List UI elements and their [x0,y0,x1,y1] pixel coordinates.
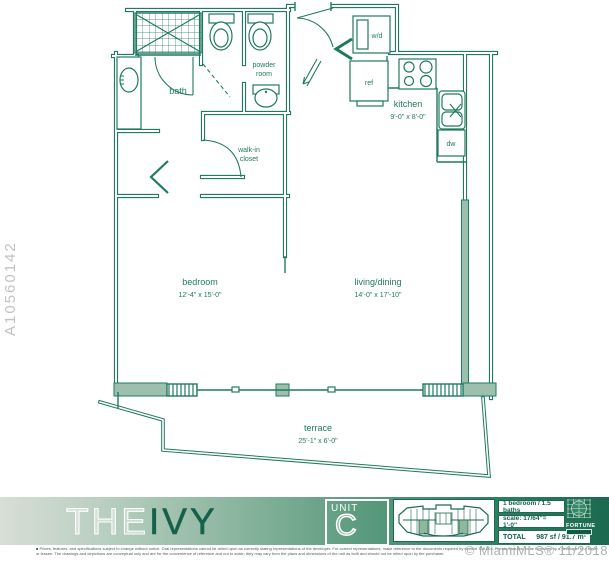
scale-text: scale: 17/64''= 1'-0'' [503,515,560,529]
kitchen-dims: 9'-0" x 8'-0" [390,114,426,121]
living-dims: 14'-0" x 17'-10" [355,292,402,299]
floor-plan-drawing: bath powder room walk-in closet kitchen … [0,0,609,497]
bedroom-closet-door [151,161,168,193]
beds-baths-box: 1 bedroom / 1.5 baths [498,500,565,513]
floorplan-page: bath powder room walk-in closet kitchen … [0,0,609,563]
bath-label: bath [169,86,187,96]
toilet-bath [209,14,234,50]
building-keyplan [393,499,495,542]
powder-label-1: powder [253,62,277,69]
south-glazing [167,384,463,396]
beds-baths-text: 1 bedroom / 1.5 baths [503,500,560,514]
fortune-logo: FORTUNE [566,499,591,529]
highlighted-unit-left [419,520,428,534]
brand-the: THE [66,502,149,542]
powder-sink [253,85,279,107]
entry-angled-wall [336,39,352,59]
unit-letter: C [335,509,357,543]
bedroom-label: bedroom [182,277,218,287]
powder-label-2: room [256,71,272,78]
unit-badge: UNIT C [325,499,389,546]
listing-id-watermark: A10560142 [2,196,22,336]
south-wall-right [463,383,496,396]
terrace-dims: 25'-1" x 6'-0" [298,438,338,445]
ref-label: ref [365,80,373,87]
slider-door-right [423,384,463,396]
entry-arrow [303,59,321,86]
fortune-tagline-bar [566,529,592,535]
stove [399,59,436,89]
wd-label: w/d [371,33,383,40]
closet-label-2: closet [240,156,258,163]
slider-door-left [167,384,197,396]
brand-logo: THEIVY [66,500,218,544]
terrace-outline [100,392,489,476]
globe-icon [567,499,591,518]
terrace-label: terrace [304,423,332,433]
living-label: living/dining [354,277,401,287]
total-label: TOTAL [503,534,526,541]
closet-label-1: walk-in [237,147,260,154]
brand-ivy: IVY [149,502,218,542]
scale-box: scale: 17/64''= 1'-0'' [498,515,565,528]
kitchen-label: kitchen [394,99,423,109]
fortune-name: FORTUNE [566,523,591,529]
mls-watermark: © MiamiMLS® 11/2018 [465,543,608,558]
keyplan-drawing [394,500,493,540]
east-wall-filled [462,200,469,386]
room-labels: bath powder room walk-in closet kitchen … [169,33,456,445]
dw-label: dw [447,141,457,148]
highlighted-unit-right [459,520,468,534]
kitchen-sink [439,91,465,129]
south-wall-left [114,383,167,396]
closet-door [203,140,241,177]
toilet-powder [248,14,273,50]
walls [113,1,496,398]
entry-door [297,8,333,47]
bedroom-dims: 12'-4" x 15'-0" [178,292,222,299]
